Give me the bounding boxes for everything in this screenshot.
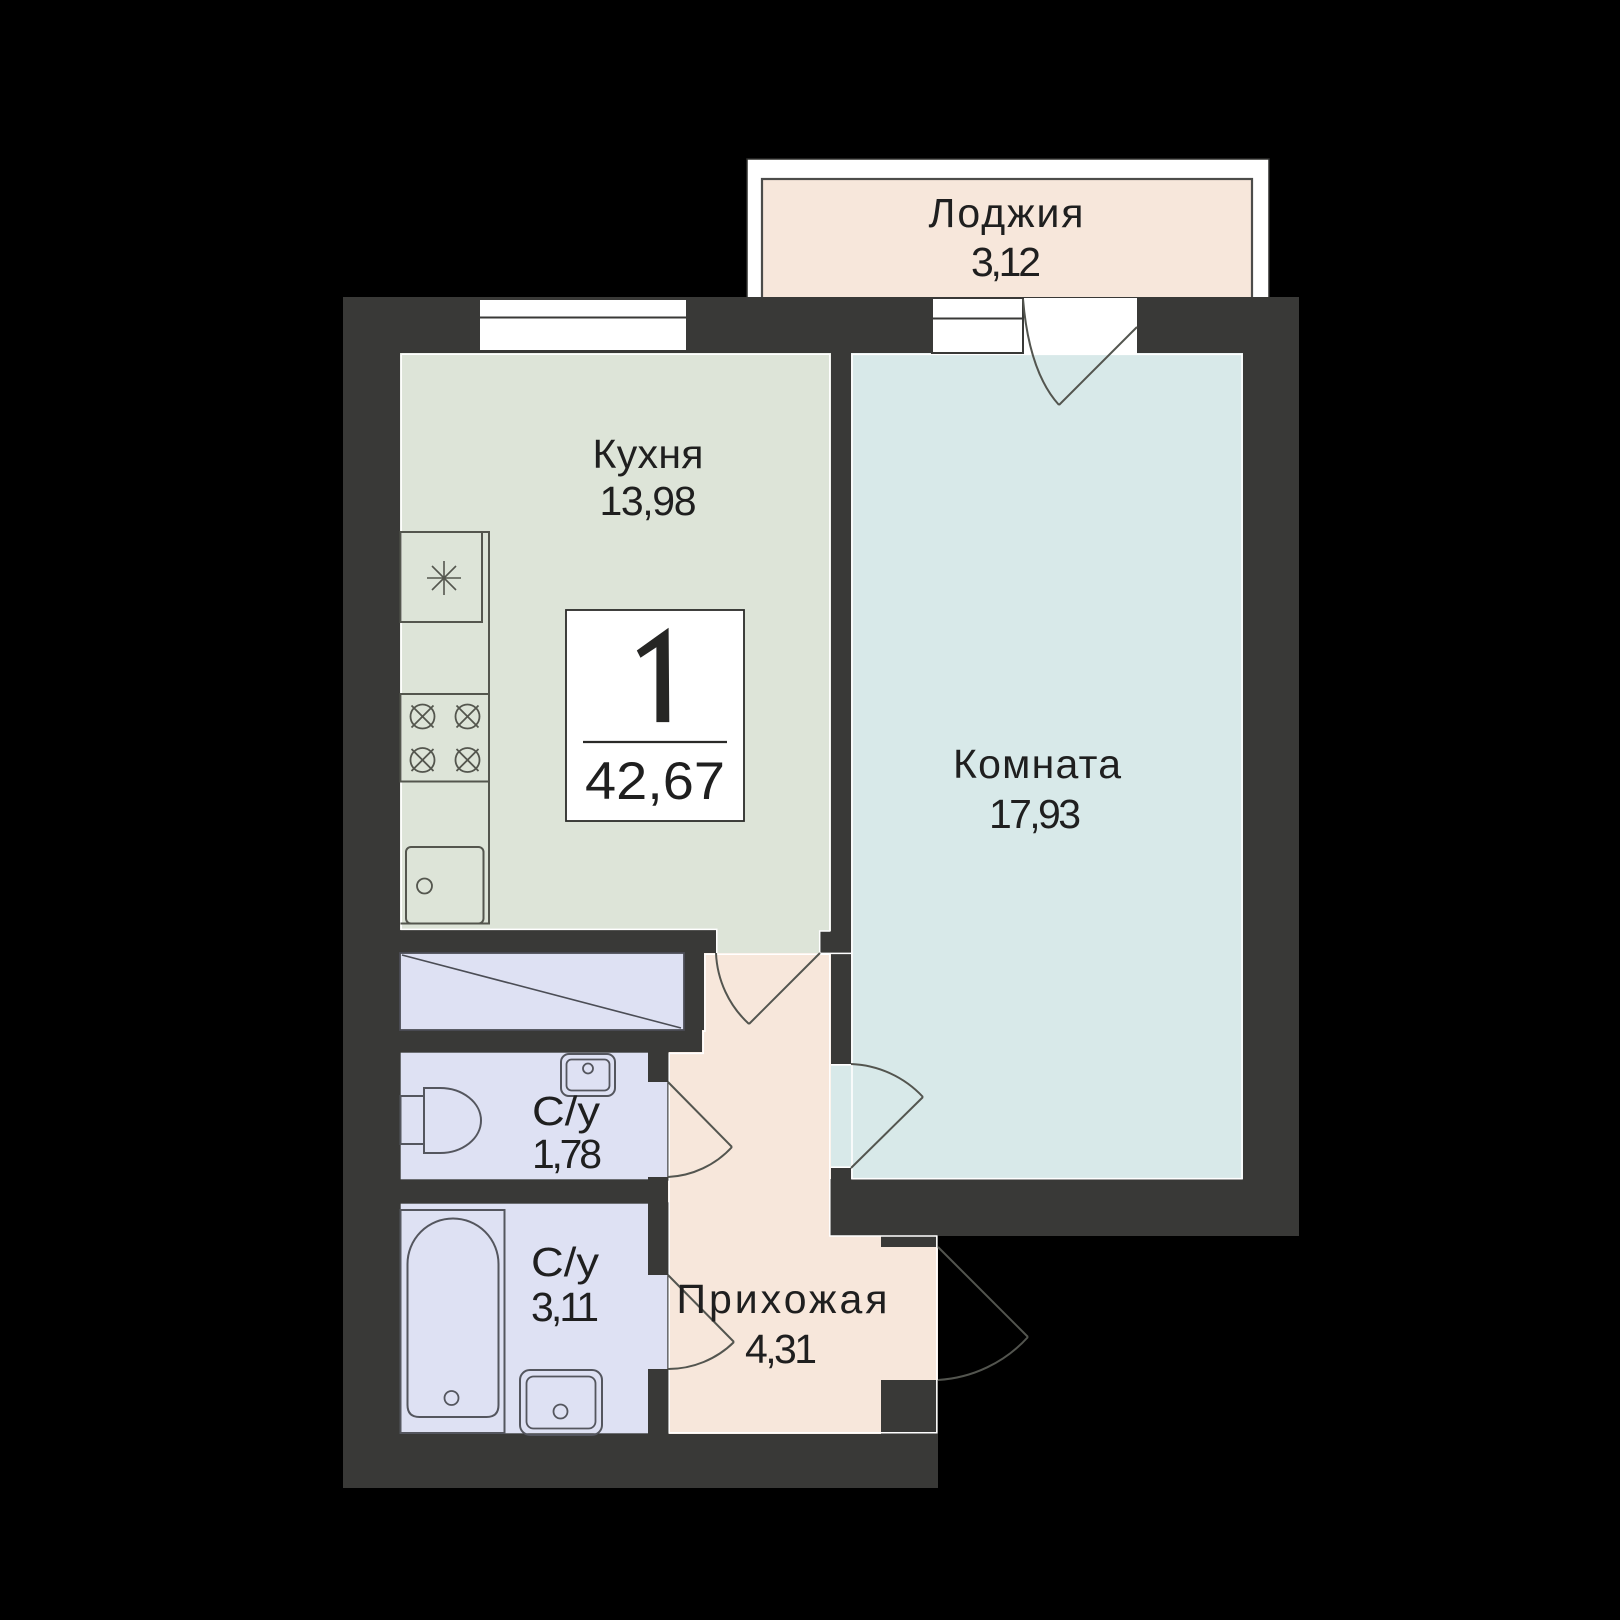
svg-text:С/у: С/у: [532, 1088, 601, 1134]
svg-text:4,31: 4,31: [745, 1326, 817, 1372]
svg-text:3,11: 3,11: [531, 1284, 599, 1330]
svg-text:3,12: 3,12: [971, 239, 1041, 285]
svg-text:Комната: Комната: [953, 741, 1121, 787]
svg-text:17,93: 17,93: [989, 791, 1081, 837]
svg-text:С/у: С/у: [531, 1239, 600, 1285]
svg-text:1,78: 1,78: [532, 1131, 602, 1177]
svg-text:Кухня: Кухня: [593, 431, 704, 477]
svg-text:42,67: 42,67: [585, 752, 725, 811]
svg-text:13,98: 13,98: [600, 478, 697, 524]
